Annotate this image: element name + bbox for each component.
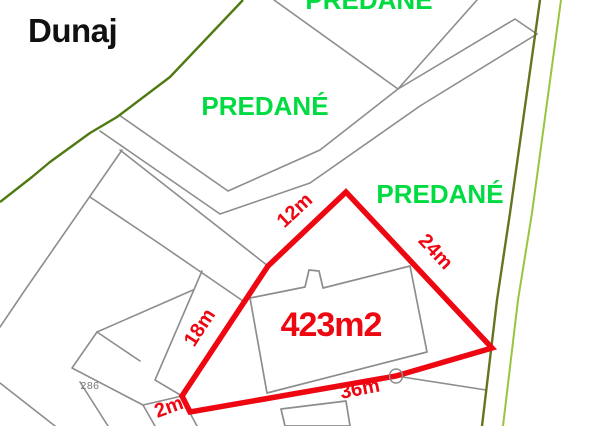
dimension-label-36m: 36m (338, 374, 381, 403)
west-strip-line-2 (90, 197, 243, 301)
west-steep-line (0, 150, 122, 327)
south-line-from-corner (190, 413, 197, 426)
parcel-number-label: 286 (80, 380, 99, 392)
cadastral-map: Dunaj PREDANÉ PREDANÉ PREDANÉ 423m2 12m … (0, 0, 600, 426)
parcel-area-label: 423m2 (281, 306, 382, 344)
region-label: Dunaj (28, 12, 117, 49)
sold-label-middle: PREDANÉ (201, 91, 328, 121)
south-building-outline (281, 401, 350, 426)
sold-label-right: PREDANÉ (376, 179, 503, 209)
southeast-bottom-line (396, 376, 486, 390)
sw-parcel-line-c (97, 332, 140, 361)
sold-label-top: PREDANÉ (305, 0, 432, 15)
sw-corner-line (0, 383, 55, 426)
map-canvas: Dunaj PREDANÉ PREDANÉ PREDANÉ 423m2 12m … (0, 0, 600, 426)
